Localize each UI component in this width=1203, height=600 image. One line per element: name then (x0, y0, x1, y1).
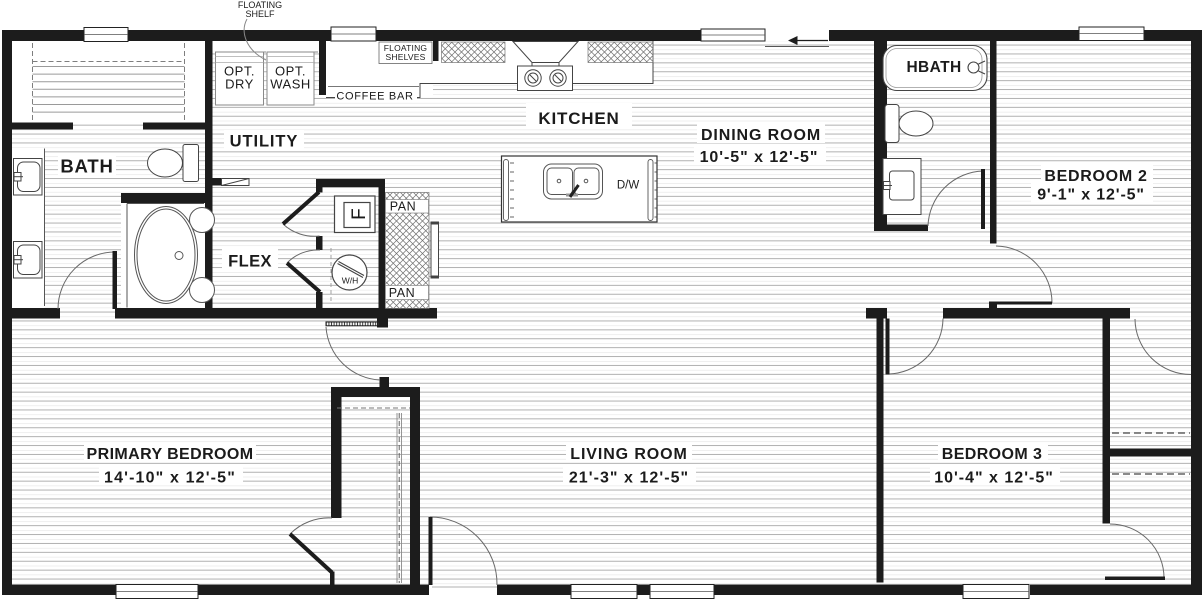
svg-text:BEDROOM 3: BEDROOM 3 (942, 446, 1043, 463)
svg-text:SHELVES: SHELVES (386, 52, 426, 62)
svg-text:BEDROOM 2: BEDROOM 2 (1044, 168, 1147, 185)
svg-text:PAN: PAN (390, 200, 417, 214)
svg-text:UTILITY: UTILITY (230, 133, 299, 151)
svg-text:DRY: DRY (225, 77, 254, 92)
svg-text:FLEX: FLEX (228, 253, 272, 271)
svg-text:W/H: W/H (342, 276, 359, 286)
svg-text:SHELF: SHELF (245, 9, 275, 19)
svg-text:F: F (349, 208, 370, 220)
svg-text:14'-10" x 12'-5": 14'-10" x 12'-5" (104, 470, 236, 487)
svg-text:WASH: WASH (270, 77, 311, 92)
svg-text:PRIMARY BEDROOM: PRIMARY BEDROOM (87, 446, 254, 463)
svg-text:COFFEE BAR: COFFEE BAR (336, 91, 413, 103)
svg-text:9'-1" x 12'-5": 9'-1" x 12'-5" (1037, 187, 1145, 204)
svg-text:PAN: PAN (389, 286, 416, 300)
svg-text:21'-3" x 12'-5": 21'-3" x 12'-5" (569, 470, 689, 487)
svg-text:HBATH: HBATH (906, 59, 961, 76)
svg-text:KITCHEN: KITCHEN (538, 109, 619, 128)
svg-text:DINING ROOM: DINING ROOM (701, 127, 821, 144)
svg-text:10'-5" x 12'-5": 10'-5" x 12'-5" (700, 149, 819, 166)
svg-text:LIVING ROOM: LIVING ROOM (570, 446, 687, 463)
svg-text:10'-4" x 12'-5": 10'-4" x 12'-5" (934, 470, 1054, 487)
svg-text:BATH: BATH (60, 156, 113, 177)
svg-text:D/W: D/W (617, 180, 640, 192)
